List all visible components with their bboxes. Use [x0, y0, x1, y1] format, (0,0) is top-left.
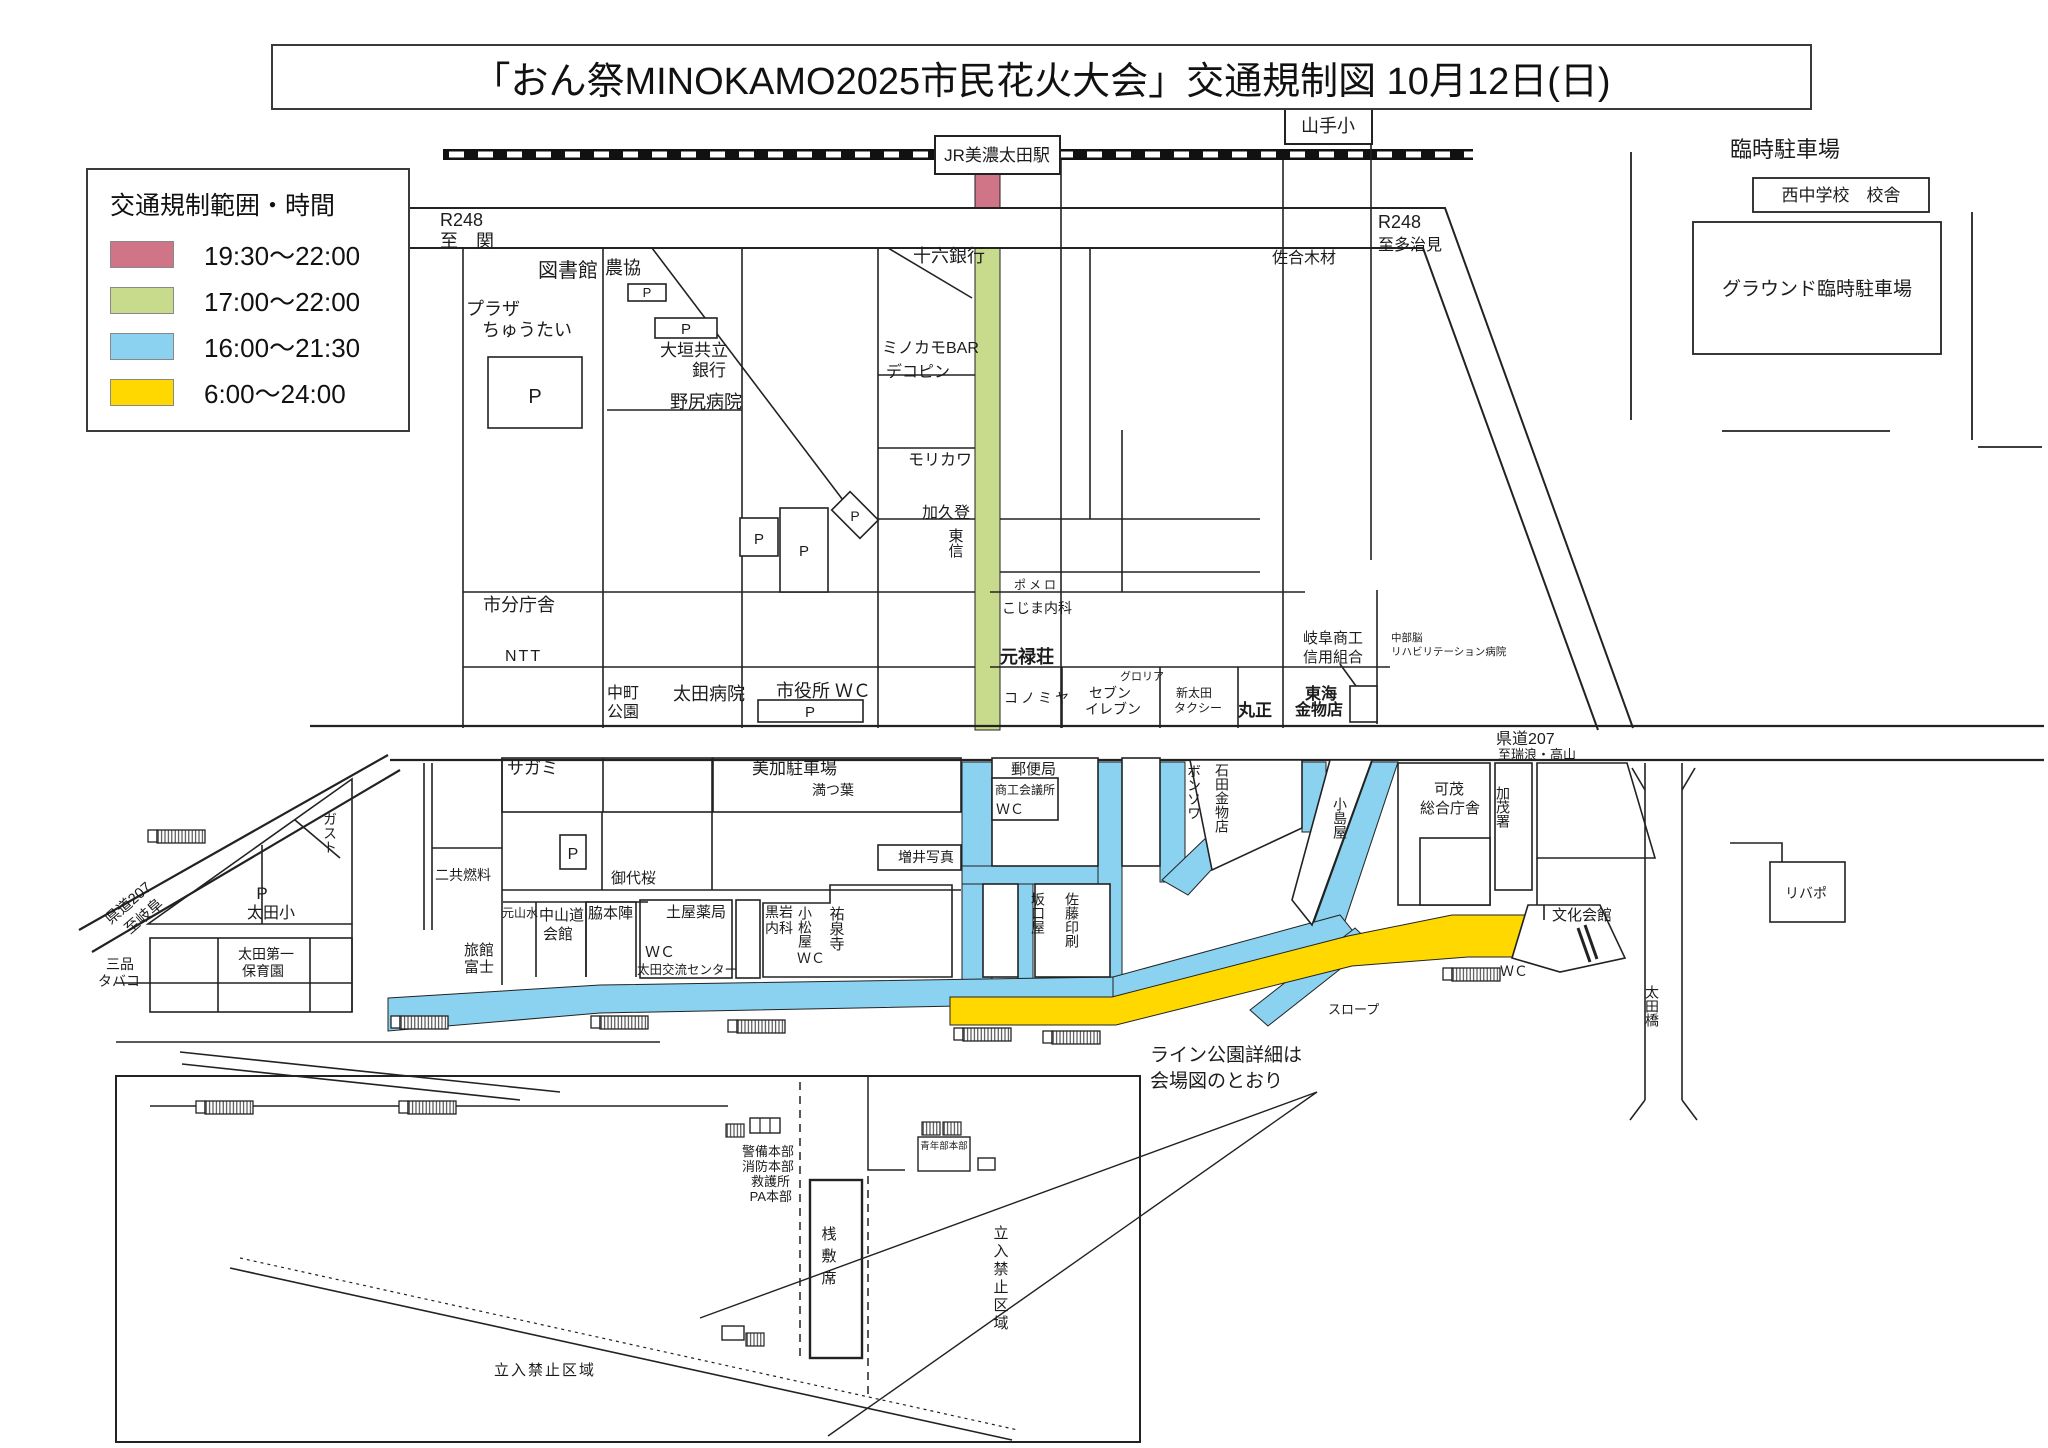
regulated-segment-red: [975, 174, 1000, 208]
sajiki-seats-label: 桟敷席: [820, 1226, 837, 1292]
no-entry-zone-label: 立入禁止区域: [494, 1362, 596, 1379]
legend-swatch-yellow: [110, 379, 174, 406]
parking-p: P: [256, 884, 267, 903]
library-label: 図書館: [538, 259, 598, 282]
ota-bridge-label: 太田橋: [1644, 985, 1660, 1027]
chubu-rehab-label2: リハビリテーション病院: [1391, 645, 1507, 658]
ogaki-bank-label: 大垣共立: [660, 341, 728, 360]
kamo-gov-office-label: 可茂: [1434, 781, 1464, 798]
wakihonjin-label: 脇本陣: [588, 905, 633, 922]
parking-p: P: [643, 285, 652, 300]
kuroiwa-clinic-label: 黒岩: [765, 904, 793, 920]
nakamachi-park-label: 中町: [607, 684, 639, 702]
bunka-kaikan-label: 文化会館: [1552, 907, 1612, 924]
komatsuya-label: 小松屋: [797, 906, 813, 949]
daiichi-nursery-label: 太田第一: [238, 946, 294, 962]
kuroiwa-clinic-label2: 内科: [765, 920, 793, 936]
stairs-icon: [391, 1016, 448, 1029]
morikawa-label: モリカワ: [908, 452, 972, 469]
mitsuba-label: 満つ葉: [812, 782, 854, 798]
first-aid-label: 救護所: [751, 1174, 790, 1189]
ogaki-bank-label2: 銀行: [692, 361, 726, 380]
hatched-box-icon: [746, 1333, 764, 1346]
legend-title: 交通規制範囲・時間: [110, 186, 408, 222]
konomiya-label: コノミヤ: [1004, 690, 1072, 706]
minokamo-bar-label: ミノカモBAR: [882, 340, 979, 357]
nikyo-fuel-label: 二共燃料: [435, 867, 491, 883]
sago-lumber-label: 佐合木材: [1272, 249, 1336, 267]
hatched-box-icon: [726, 1124, 744, 1137]
parking-p: P: [568, 846, 579, 863]
traffic-regulation-map-page: JR美濃太田駅 山手小 R248 至 関 R248 至多治見 県道207 至瑞浪…: [0, 0, 2048, 1448]
youth-hq-label: 青年部本部: [920, 1140, 968, 1152]
ntt-label: NTT: [505, 648, 542, 665]
route-248-east-label: R248: [1378, 212, 1421, 232]
seven-eleven-label: セブン: [1089, 685, 1131, 701]
mishina-tobacco-label: 三品: [106, 956, 134, 972]
gusto-label: ガスト: [322, 812, 338, 854]
security-hq-label: 警備本部: [742, 1144, 794, 1159]
legend-swatch-blue: [110, 333, 174, 360]
kojimaya-label: 小島屋: [1332, 797, 1348, 840]
temp-parking-label: 臨時駐車場: [1730, 137, 1840, 162]
ribapo-label: リバポ: [1785, 885, 1827, 901]
to-mizunami-label: 至瑞浪・高山: [1498, 747, 1576, 762]
legend-label: 16:00〜21:30: [204, 328, 360, 365]
route-207-east-label: 県道207: [1496, 730, 1555, 748]
no-entry-zone-label-vertical: 立入禁止区域: [992, 1225, 1009, 1333]
stairs-icon: [954, 1028, 1011, 1041]
tsuchiya-pharmacy-label: 土屋薬局: [666, 904, 726, 921]
fire-hq-label: 消防本部: [742, 1159, 794, 1174]
route-207-west-label: 県道207 至岐阜: [102, 879, 168, 943]
ota-elementary-label: 太田小: [247, 904, 295, 922]
ryokan-fuji-label2: 富士: [464, 958, 494, 976]
regulated-segment-green: [975, 248, 1000, 730]
bonsowa-label: ボンソワ: [1186, 764, 1202, 820]
city-hall-wc-label: 市役所 ＷＣ: [776, 681, 871, 701]
yamate-school-label: 山手小: [1301, 116, 1355, 136]
gifu-shoko-label: 岐阜商工: [1303, 630, 1363, 647]
nakasendo-hall-label: 中山道: [539, 907, 584, 924]
stairs-icon: [1043, 1031, 1100, 1044]
wc-label: ＷＣ: [797, 950, 825, 966]
slope-label: スロープ: [1328, 1002, 1379, 1017]
tokai-hardware-label2: 金物店: [1294, 700, 1343, 719]
parking-p: P: [754, 531, 764, 548]
stairs-icon: [148, 830, 205, 843]
line-park-note: ライン公園詳細は: [1150, 1044, 1302, 1066]
kojima-clinic-label: こじま内科: [1002, 600, 1072, 616]
plaza-chutai-label2: ちゅうたい: [482, 320, 572, 340]
hatched-box-icon: [922, 1122, 940, 1135]
chubu-rehab-label: 中部脳: [1391, 631, 1423, 644]
parking-p: P: [681, 321, 691, 338]
legend-swatch-green: [110, 287, 174, 314]
parking-p: P: [528, 386, 541, 408]
gloria-label: グロリア: [1120, 669, 1164, 683]
kamo-police-label: 加茂署: [1495, 786, 1511, 828]
to-seki-label: 至 関: [440, 231, 494, 251]
stairs-icon: [591, 1016, 648, 1029]
nakasendo-hall-label2: 会館: [543, 926, 573, 943]
pa-hq-label: PA本部: [750, 1189, 792, 1204]
shin-ota-taxi-label2: タクシー: [1174, 701, 1222, 715]
toshin-label: 東信: [947, 528, 964, 558]
daiichi-nursery-label2: 保育園: [242, 963, 284, 979]
masui-photo-label: 増井写真: [898, 849, 954, 865]
ryokan-fuji-label: 旅館: [464, 942, 494, 959]
shin-ota-taxi-label: 新太田: [1176, 685, 1212, 700]
ground-parking-label: グラウンド臨時駐車場: [1722, 278, 1912, 300]
plaza-chutai-label: プラザ: [466, 299, 520, 319]
legend: 交通規制範囲・時間 19:30〜22:00 17:00〜22:00 16:00〜…: [86, 168, 410, 432]
sato-printing-label: 佐藤印刷: [1064, 892, 1080, 948]
wc-label: ＷＣ: [645, 944, 675, 961]
ota-hospital-label: 太田病院: [673, 684, 745, 704]
to-tajimi-label: 至多治見: [1378, 236, 1442, 254]
tokai-hardware-label: 東海: [1305, 684, 1337, 703]
southwest-blocks: [116, 763, 660, 1100]
stairs-icon: [1443, 968, 1500, 981]
route-248-west-label: R248: [440, 210, 483, 230]
parking-p: P: [799, 543, 809, 560]
nojiri-hospital-label: 野尻病院: [670, 392, 742, 412]
juroku-bank-label: 十六銀行: [913, 246, 985, 266]
legend-swatch-red: [110, 241, 174, 268]
station-label: JR美濃太田駅: [944, 146, 1050, 165]
legend-row: 17:00〜22:00: [110, 282, 408, 319]
legend-row: 6:00〜24:00: [110, 374, 408, 411]
wc-label: ＷＣ: [996, 801, 1024, 817]
hatched-box-icon: [943, 1122, 961, 1135]
legend-label: 19:30〜22:00: [204, 236, 360, 273]
mishina-tobacco-label2: タバコ: [98, 973, 140, 989]
miyozakura-label: 御代桜: [611, 870, 656, 887]
page-title: 「おん祭MINOKAMO2025市民花火大会」交通規制図 10月12日(日): [271, 44, 1812, 110]
stairs-icon: [399, 1101, 456, 1114]
wc-label: ＷＣ: [1500, 963, 1528, 979]
chamber-of-commerce-label: 商工会議所: [995, 782, 1055, 797]
yusenji-label: 祐泉寺: [828, 906, 845, 951]
gifu-shoko-label2: 信用組合: [1303, 649, 1363, 666]
sakaguchiya-label: 坂口屋: [1030, 892, 1046, 935]
parking-p: P: [850, 508, 859, 524]
mika-parking-label: 美加駐車場: [752, 759, 837, 778]
nakamachi-park-label2: 公園: [607, 704, 639, 721]
seven-eleven-label2: イレブン: [1085, 701, 1141, 717]
kamo-gov-office-label2: 総合庁舎: [1420, 800, 1480, 817]
legend-row: 16:00〜21:30: [110, 328, 408, 365]
sagami-label: サガミ: [507, 759, 558, 778]
parking-p: P: [805, 704, 815, 721]
legend-label: 6:00〜24:00: [204, 374, 346, 411]
marusho-label: 丸正: [1237, 700, 1272, 720]
pomero-label: ポメロ: [1014, 578, 1059, 592]
kakuto-label: 加久登: [922, 504, 970, 522]
dekopin-label: デコピン: [886, 362, 950, 381]
post-office-label: 郵便局: [1011, 761, 1056, 778]
genrokuso-label: 元禄荘: [1000, 646, 1054, 667]
nishi-junior-high-label: 西中学校 校舎: [1782, 186, 1901, 205]
line-park-note2: 会場図のとおり: [1150, 1070, 1283, 1092]
no-entry-detail-box: [116, 1076, 1317, 1442]
koryu-center-label: 太田交流センター: [637, 962, 737, 977]
city-branch-office-label: 市分庁舎: [483, 595, 555, 615]
ishida-hardware-label: 石田金物店: [1214, 763, 1230, 833]
motoyamasui-label: 元山水: [502, 906, 538, 920]
legend-label: 17:00〜22:00: [204, 282, 360, 319]
ja-coop-label: 農協: [605, 258, 641, 278]
stairs-icon: [728, 1020, 785, 1033]
stairs-icon: [196, 1101, 253, 1114]
legend-row: 19:30〜22:00: [110, 236, 408, 273]
